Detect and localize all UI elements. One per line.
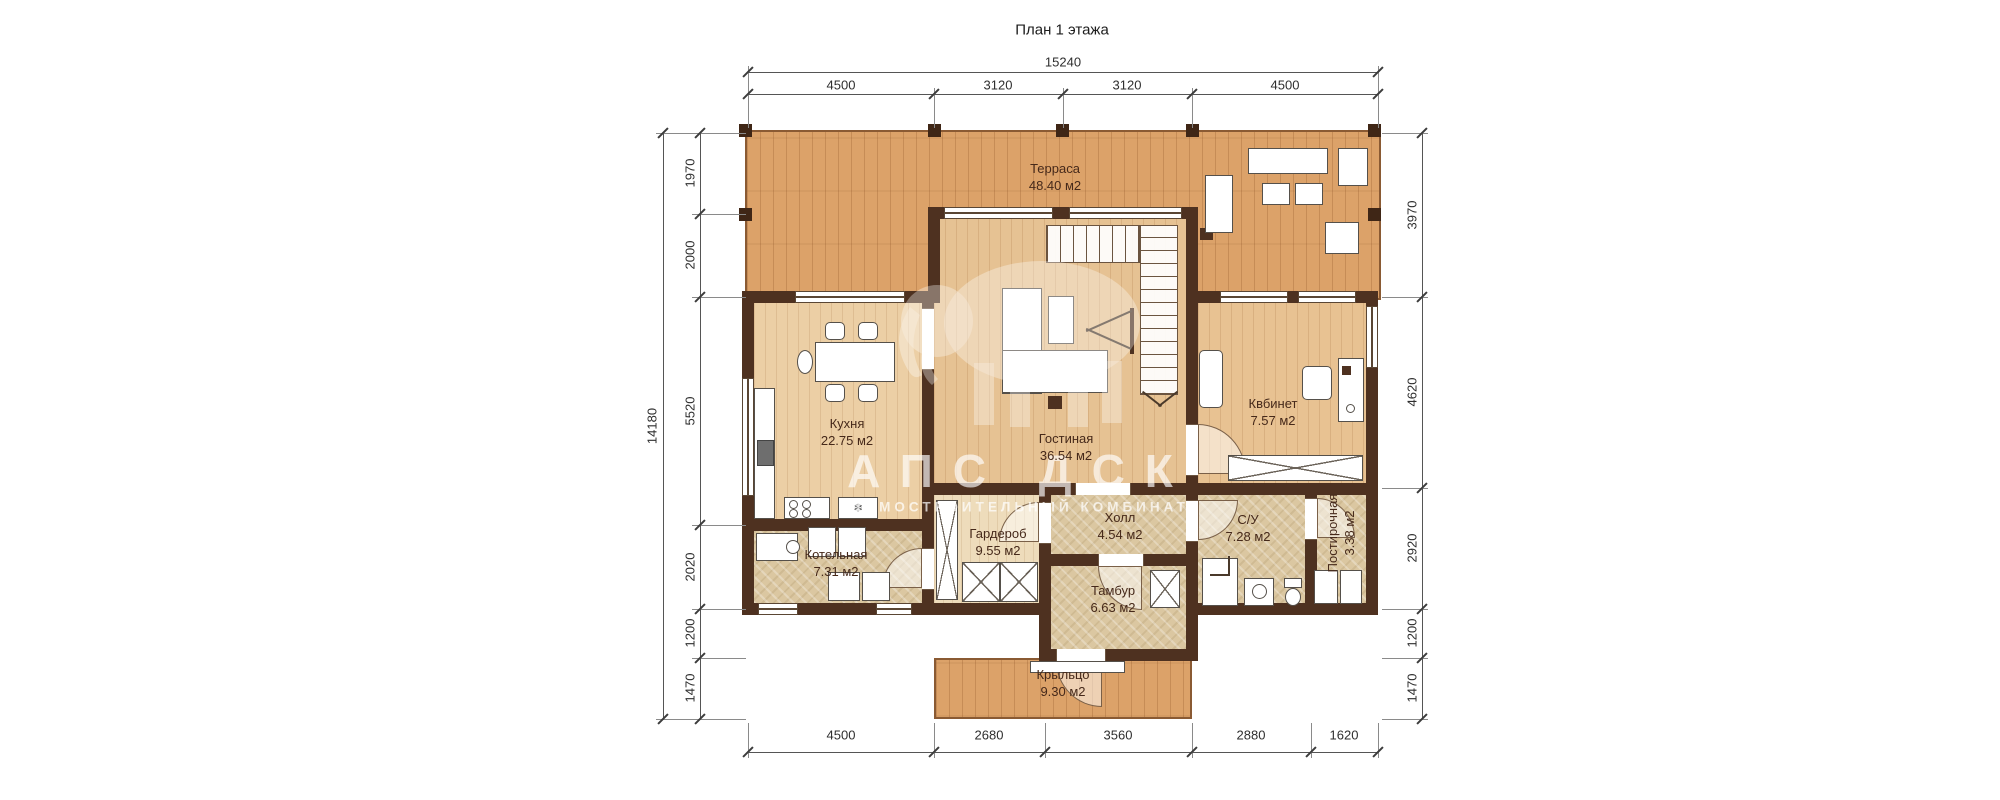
dim-label: 3560 (1104, 728, 1133, 743)
laundry-cabinet (1314, 570, 1338, 604)
window (1220, 291, 1288, 303)
burner-icon (789, 500, 798, 509)
floor-plan-canvas: План 1 этажа (0, 0, 2000, 800)
burner-icon (789, 509, 798, 518)
dim-label: 3120 (1113, 78, 1142, 93)
dim-label: 2000 (683, 241, 698, 270)
terrace-armchair (1338, 148, 1368, 186)
toilet-bowl (1285, 588, 1301, 606)
dim-label: 2880 (1237, 728, 1266, 743)
window (795, 291, 905, 303)
room-label-living: Гостиная36.54 м2 (1039, 431, 1094, 465)
armchair (1199, 350, 1223, 408)
door-opening (922, 548, 934, 590)
chair (797, 350, 813, 374)
burner-icon (802, 509, 811, 518)
shoe-cabinet (1150, 570, 1180, 608)
dim-line (748, 752, 1378, 753)
room-label-porch: Крыльцо9.30 м2 (1036, 667, 1089, 701)
room-label-hall: Холл4.54 м2 (1097, 510, 1142, 544)
wardrobe-cabinet (1000, 562, 1038, 602)
wall (1186, 219, 1198, 603)
dim-label: 1970 (683, 159, 698, 188)
dim-label: 1470 (1405, 674, 1420, 703)
terrace-post (739, 124, 752, 137)
office-chair (1302, 366, 1332, 400)
door-opening (1098, 554, 1144, 566)
burner-icon (802, 500, 811, 509)
terrace-sofa (1248, 148, 1328, 174)
stairs-lower-run (1140, 225, 1178, 395)
dim-label: 1470 (683, 674, 698, 703)
faucet-icon (1228, 556, 1230, 576)
terrace-table (1295, 183, 1323, 205)
coffee-table (1048, 296, 1074, 344)
door-opening (1039, 502, 1051, 544)
lamp-icon (1346, 404, 1355, 413)
window (1366, 306, 1378, 368)
laundry-cabinet (1340, 570, 1362, 604)
terrace-post (1368, 208, 1381, 221)
dim-label: 4500 (827, 78, 856, 93)
window (876, 603, 912, 615)
door-opening (1305, 498, 1317, 540)
dim-line (700, 133, 701, 719)
door-opening (1186, 500, 1198, 542)
room-label-laundry: Постирочная3.38 м2 (1325, 494, 1359, 573)
room-label-vestibule: Тамбур6.63 м2 (1090, 583, 1135, 617)
dim-label: 3120 (984, 78, 1013, 93)
sofa (1002, 350, 1108, 393)
wall (1186, 554, 1198, 661)
terrace-table (1262, 183, 1290, 205)
door-opening (1186, 424, 1198, 476)
column (1048, 396, 1062, 409)
dim-line (663, 133, 664, 719)
chair (858, 384, 878, 402)
room-label-boiler: Котельная7.31 м2 (805, 547, 868, 581)
chair (825, 384, 845, 402)
room-label-bathroom: С/У7.28 м2 (1225, 512, 1270, 546)
wardrobe-cabinet (936, 500, 958, 600)
dim-line (1422, 133, 1423, 719)
ext-line (748, 66, 749, 128)
room-label-terrace: Терраса48.40 м2 (1029, 161, 1081, 195)
drain-icon (1252, 584, 1267, 599)
stairs-upper-run (1046, 225, 1140, 263)
bathtub (1202, 558, 1238, 606)
terrace-armchair (1325, 222, 1359, 254)
sink-icon (757, 440, 774, 466)
dim-label: 4500 (827, 728, 856, 743)
dim-label: 14180 (645, 408, 660, 444)
toilet-tank (1284, 578, 1302, 588)
dim-label: 3970 (1405, 201, 1420, 230)
chair (858, 322, 878, 340)
faucet-icon (1210, 574, 1230, 576)
dim-label: 4500 (1271, 78, 1300, 93)
dim-label: 5520 (683, 397, 698, 426)
dim-label: 4620 (1405, 378, 1420, 407)
room-label-wardrobe: Гардероб9.55 м2 (969, 526, 1026, 560)
dim-label: 1620 (1330, 728, 1359, 743)
dim-label: 2680 (975, 728, 1004, 743)
room-label-kitchen: Кухня22.75 м2 (821, 416, 873, 450)
dining-table (815, 342, 895, 382)
chair (825, 322, 845, 340)
terrace-sofa (1205, 175, 1233, 233)
window (1298, 291, 1356, 303)
fridge-icon: ❄ (838, 497, 878, 519)
dim-label: 1200 (683, 619, 698, 648)
dim-label: 2020 (683, 553, 698, 582)
wall (928, 207, 940, 303)
dim-line (748, 72, 1378, 73)
boiler-gauge-icon (786, 540, 800, 554)
wall (922, 483, 1378, 495)
window (758, 603, 798, 615)
window (1069, 207, 1182, 219)
ext-line (1378, 66, 1379, 128)
terrace-post (1368, 124, 1381, 137)
dim-label: 2920 (1405, 534, 1420, 563)
computer-icon (1342, 366, 1351, 375)
door-opening (1075, 483, 1131, 495)
page-title: План 1 этажа (1015, 22, 1109, 39)
window (742, 378, 754, 496)
dim-label: 15240 (1045, 55, 1081, 70)
entrance-door-opening (1056, 649, 1106, 661)
door-opening (922, 308, 934, 370)
wardrobe-cabinet (1228, 455, 1363, 481)
wardrobe-cabinet (962, 562, 1000, 602)
dim-label: 1200 (1405, 619, 1420, 648)
window (944, 207, 1053, 219)
room-label-cabinet: Квбинет7.57 м2 (1249, 396, 1298, 430)
